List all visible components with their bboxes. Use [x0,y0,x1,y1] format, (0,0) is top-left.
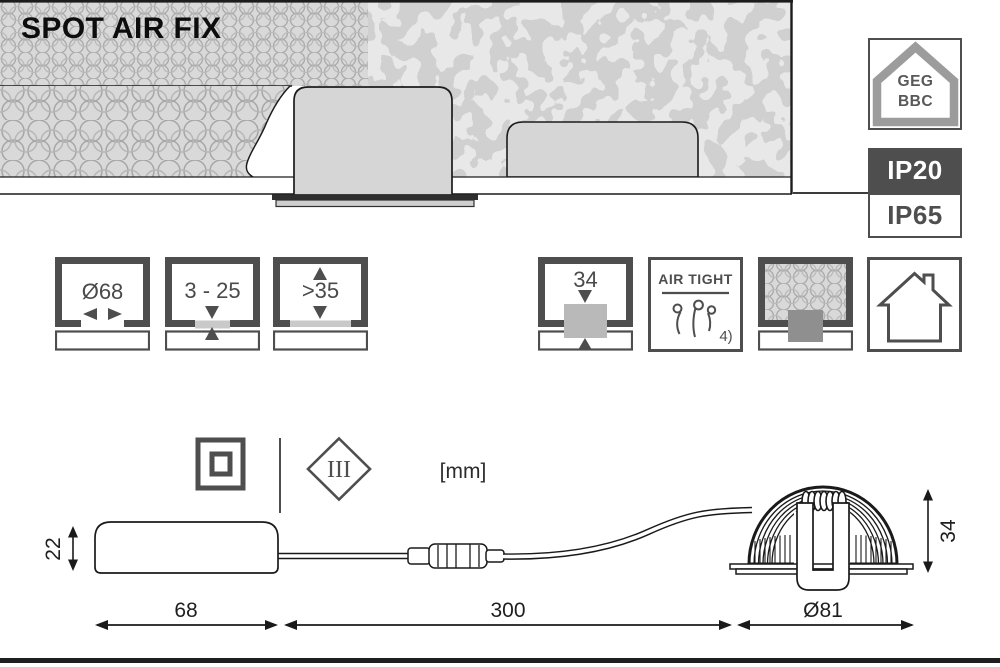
dim-driver-height: 22 [42,526,78,571]
icon-indoor-use [867,257,962,352]
class-iii-label: III [327,457,351,483]
units-label: [mm] [440,460,487,483]
ip20-badge: IP20 [868,148,962,193]
geg-label: GEG [897,73,933,90]
ceiling-thickness-label: 3 - 25 [184,278,240,303]
dim-spot-diameter: Ø81 [737,599,914,630]
bbc-label: BBC [897,93,932,110]
covered-luminaire-block [788,310,823,342]
badge-leader-line [793,192,868,194]
dim-driver-length-label: 68 [174,599,197,622]
cutout-diameter-label: Ø68 [82,279,124,304]
geg-bbc-badge: GEG BBC [868,38,962,130]
icon-min-recess-clearance: >35 [273,257,368,352]
dim-cable-length-label: 300 [490,599,525,622]
drawing-top-border [0,0,793,3]
min-clearance-label: >35 [302,278,339,303]
air-tight-label: AIR TIGHT [658,271,733,287]
icon-air-tight: AIR TIGHT 4) [648,257,743,352]
buried-driver-box [507,122,698,177]
dim-spot-height: 34 [923,489,960,573]
page-title: SPOT AIR FIX [21,12,221,46]
icon-ceiling-thickness: 3 - 25 [165,257,260,352]
driver-side-view [95,522,278,573]
dim-driver-height-label: 22 [42,537,65,560]
dim-driver-length: 68 [95,599,278,630]
spot-housing [294,87,452,195]
trim-ring-light [276,200,474,207]
dim-cable-length: 300 [284,599,732,630]
diameter-arrows-icon [83,308,122,320]
icon-insulation-coverable [758,257,853,352]
air-tight-footnote: 4) [719,328,732,345]
class-iii-icon: III [308,439,370,500]
class-ii-icon [198,440,243,488]
luminaire-block [564,304,607,338]
dimension-drawing: III [mm] [0,420,1000,667]
icon-recess-depth: 34 [538,257,633,352]
spotlight-side-view [730,487,913,590]
geg-house-icon: GEG BBC [871,41,960,128]
cable-connector [408,544,504,568]
bottom-border [0,658,1000,663]
icon-cutout-diameter: Ø68 [55,257,150,352]
cable-spot-segment [503,510,752,557]
ip65-badge: IP65 [868,193,962,238]
recess-depth-label: 34 [573,267,597,292]
product-datasheet: SPOT AIR FIX GEG BBC IP20 IP65 Ø68 [0,0,1000,667]
trim-ring-dark [272,195,478,201]
dim-spot-diameter-label: Ø81 [803,599,843,622]
dim-spot-height-label: 34 [937,519,960,543]
